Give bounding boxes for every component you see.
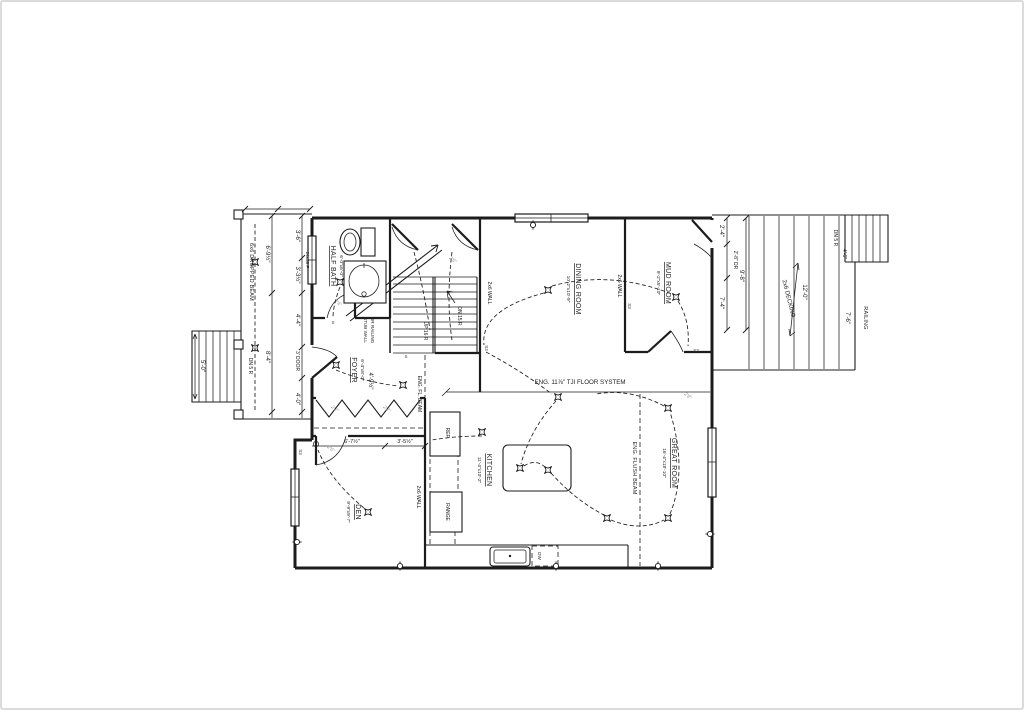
- porch-stairs-dn-label: DN 5 R: [247, 358, 253, 375]
- tji-floor-label: ENG. 11⅞" TJI FLOOR SYSTEM: [534, 379, 625, 386]
- stairs-up-label: UP 16 R: [422, 322, 428, 341]
- room-dims-den: 9'-9"x9'-7": [345, 501, 351, 523]
- deck-stairs-dn-label: DN 5 R: [832, 230, 838, 247]
- refrigerator-label: REF.: [444, 428, 450, 439]
- floor-beam-label: ENG. FL. BEAM: [416, 376, 422, 412]
- floor-plan-page: UP 16 R DN 15 R STUB WALL OR RAILING 6'-…: [0, 0, 1024, 710]
- dim-porch-4-0: 4'-0": [294, 393, 300, 405]
- switch-label: S: [331, 320, 334, 325]
- dim-right-7-4: 7'-4": [718, 297, 724, 309]
- deck-lower-dim: 7'-6": [844, 312, 850, 324]
- window-size-tag: 24x36 P: [305, 252, 310, 269]
- dim-hall-3-5: 3'-5½": [397, 438, 413, 445]
- room-label-great: GREAT ROOM: [670, 438, 677, 488]
- room-label-kitchen: KITCHEN: [485, 454, 492, 487]
- dim-porch-4-4: 4'-4": [294, 314, 300, 326]
- wall-label-kitchen-west: 2x6 WALL: [415, 486, 421, 509]
- room-label-foyer: FOYER: [350, 357, 357, 383]
- room-dims-foyer: 6'-4"x8'-0": [359, 359, 365, 381]
- page-border: [1, 1, 1023, 709]
- wall-label-dining-west: 2x6 WALL: [486, 282, 492, 305]
- dim-porch-6-9: 6'-9½": [264, 246, 271, 263]
- stub-wall-label-2: OR RAILING: [370, 317, 375, 344]
- dropped-beam-label: 6x6 DROPPED BEAM: [248, 243, 254, 301]
- deck-depth-dim: 12'-0": [801, 284, 807, 299]
- dim-hall-6-7: 6'-7½": [344, 438, 360, 445]
- front-door-tag: 3' DOOR: [294, 351, 300, 372]
- room-dims-kitchen: 11'-4"x10'-2": [476, 457, 482, 484]
- kitchen-island: [503, 445, 571, 491]
- dim-porch-3-3: 3'-3½": [294, 267, 301, 284]
- dim-right-2-8-dr: 2'-8" DR: [732, 251, 738, 270]
- dim-right-2-4: 2'-4": [718, 225, 724, 237]
- room-label-den: DEN: [354, 504, 361, 520]
- wall-label-dining-east: 2x6 WALL: [616, 275, 622, 298]
- dim-porch-8-4: 8'-4": [264, 351, 270, 363]
- switch-label: S3: [484, 345, 489, 351]
- room-dims-mud: 9'-2"x5'-10": [655, 271, 661, 295]
- switch-label: S3: [298, 449, 303, 455]
- switch-label: S: [404, 354, 407, 359]
- room-label-half-bath: HALF BATH: [329, 246, 336, 287]
- dishwasher-label: DW: [537, 552, 542, 560]
- room-dims-half-bath: 6'-0"x6'-0": [338, 255, 344, 277]
- deck-stairs-width: 4'-6": [841, 249, 847, 259]
- room-label-dining: DINING ROOM: [574, 263, 581, 315]
- flush-beam-label: ENG. FLUSH BEAM: [631, 441, 637, 494]
- floor-plan-drawing: UP 16 R DN 15 R STUB WALL OR RAILING 6'-…: [0, 0, 1024, 710]
- switch-label: S3: [627, 303, 632, 309]
- room-dims-dining: 10'-2"x10'-9": [565, 276, 571, 303]
- railing-label: RAILING: [862, 306, 868, 329]
- porch-stairs-width: 5'-0": [199, 360, 205, 372]
- switch-label: S3: [693, 348, 699, 353]
- room-label-mud: MUD ROOM: [664, 262, 671, 304]
- stairs-down-label: DN 15 R: [456, 306, 462, 326]
- dim-porch-3-6: 3'-6": [294, 230, 300, 242]
- stub-wall-label-1: STUB WALL: [363, 317, 368, 343]
- dim-right-9-8: 9'-8": [738, 270, 744, 282]
- range-label: RANGE: [444, 503, 450, 521]
- toilet-tank: [361, 228, 375, 256]
- room-dims-great: 16'-4"x18'-10": [661, 448, 667, 478]
